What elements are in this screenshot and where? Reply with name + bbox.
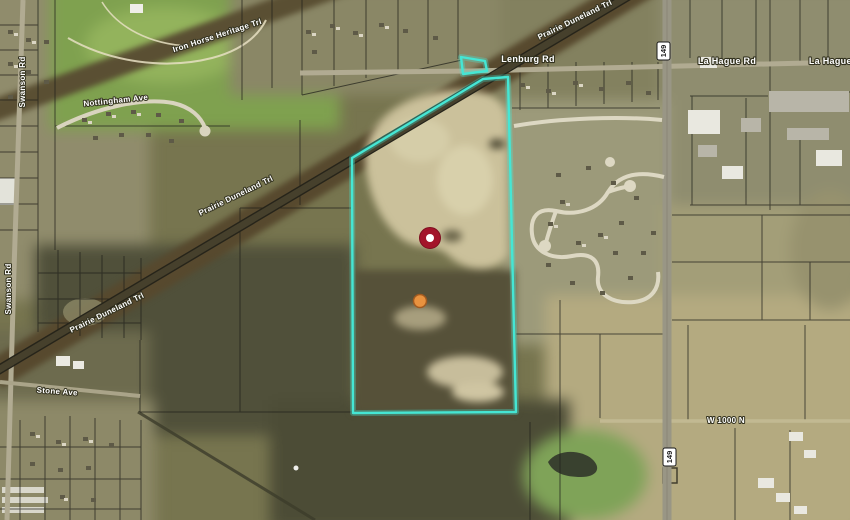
secondary-point-marker[interactable]	[414, 295, 427, 308]
route-shield-149-north: 149	[657, 42, 670, 60]
label-swanson-rd-north: Swanson Rd	[18, 56, 27, 107]
terrain	[0, 0, 850, 520]
label-la-hague-rd-mid: La Hague Rd	[698, 56, 756, 66]
route-shield-149-north-text: 149	[659, 45, 668, 58]
primary-marker-center-dot	[426, 234, 434, 242]
aerial-parcel-map[interactable]: Lenburg Rd La Hague Rd La Hague Rd W 100…	[0, 0, 850, 520]
label-swanson-rd-south: Swanson Rd	[4, 263, 13, 314]
map-canvas: Lenburg Rd La Hague Rd La Hague Rd W 100…	[0, 0, 850, 520]
route-shield-149-south: 149	[663, 448, 676, 466]
park-building	[130, 4, 143, 13]
route-shield-149-south-text: 149	[665, 451, 674, 464]
label-la-hague-rd-east: La Hague Rd	[809, 56, 850, 66]
primary-location-marker[interactable]	[420, 228, 441, 249]
label-w-1000-n: W 1000 N	[707, 416, 745, 425]
label-lenburg-rd: Lenburg Rd	[501, 54, 555, 64]
